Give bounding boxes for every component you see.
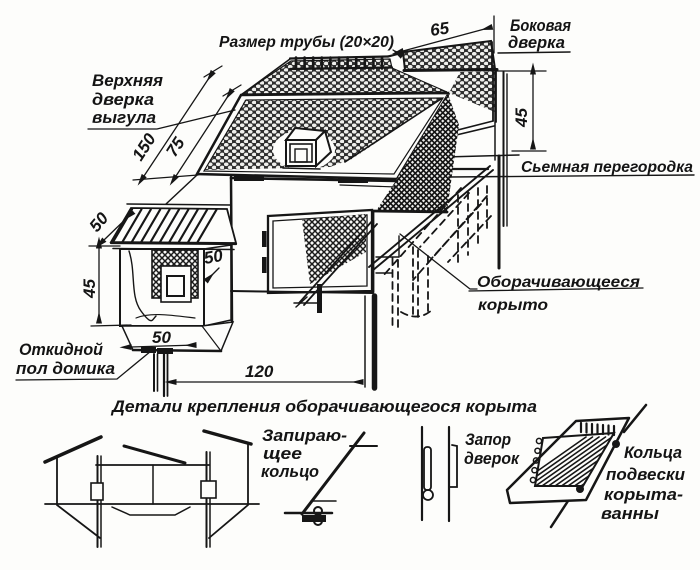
svg-text:Верхняя: Верхняя bbox=[92, 72, 163, 90]
svg-text:Боковая: Боковая bbox=[510, 17, 571, 35]
svg-text:щее: щее bbox=[263, 445, 302, 463]
svg-text:корыта-: корыта- bbox=[604, 485, 683, 504]
svg-text:дверок: дверок bbox=[464, 450, 521, 468]
svg-text:45: 45 bbox=[512, 108, 531, 128]
svg-text:Запираю-: Запираю- bbox=[262, 427, 348, 445]
svg-text:50: 50 bbox=[202, 246, 224, 268]
svg-text:кольцо: кольцо bbox=[261, 463, 319, 481]
svg-text:65: 65 bbox=[429, 18, 451, 40]
svg-text:120: 120 bbox=[245, 362, 274, 381]
svg-text:45: 45 bbox=[80, 279, 99, 299]
svg-text:ванны: ванны bbox=[601, 504, 660, 523]
svg-text:дверка: дверка bbox=[92, 91, 154, 109]
svg-text:выгула: выгула bbox=[92, 109, 156, 127]
svg-text:Откидной: Откидной bbox=[19, 341, 103, 359]
svg-text:дверка: дверка bbox=[508, 34, 565, 52]
svg-text:подвески: подвески bbox=[606, 465, 686, 484]
svg-text:50: 50 bbox=[152, 328, 171, 347]
svg-text:Запор: Запор bbox=[465, 431, 511, 449]
svg-text:Детали крепления оборачивающег: Детали крепления оборачивающегося корыта bbox=[110, 397, 537, 416]
svg-text:Кольца: Кольца bbox=[624, 443, 682, 462]
svg-text:Размер трубы (20×20): Размер трубы (20×20) bbox=[219, 34, 394, 51]
svg-text:пол домика: пол домика bbox=[16, 360, 115, 378]
svg-text:Сьемная перегородка: Сьемная перегородка bbox=[521, 159, 693, 176]
svg-text:корыто: корыто bbox=[478, 297, 548, 314]
